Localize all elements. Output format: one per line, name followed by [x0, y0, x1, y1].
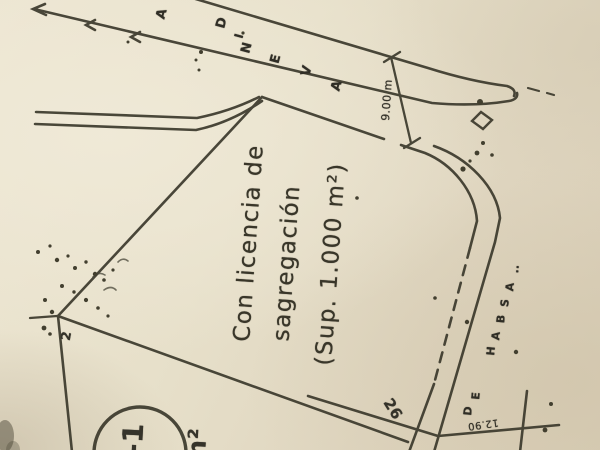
area-unit-label: m² — [182, 427, 213, 450]
roadB-left-edge-dashed — [434, 248, 470, 384]
road-name-letter: B — [494, 314, 508, 323]
parcel-id-label: -1 — [116, 422, 151, 450]
diamond-marker-icon — [472, 112, 492, 129]
road-name-letter: E — [469, 392, 483, 401]
roadB-left-edge-tail — [409, 384, 434, 450]
road-name-letter: A — [503, 282, 517, 292]
scanned-site-plan: A V E N I D A D E H A B S A .. 9.00 m 26… — [0, 0, 600, 450]
lane-upper-line — [36, 97, 259, 118]
avenida-top-edge — [189, 0, 515, 96]
road-end-dash — [528, 88, 554, 95]
road-name-letter: A — [489, 331, 503, 341]
road-name-letter: H — [484, 346, 498, 356]
road-name-letter: D — [461, 406, 475, 416]
road-name-letter: S — [498, 298, 512, 307]
bottom-right-boundary — [520, 391, 527, 450]
road-name-letter: .. — [508, 264, 522, 273]
vertex-tick — [30, 316, 57, 318]
